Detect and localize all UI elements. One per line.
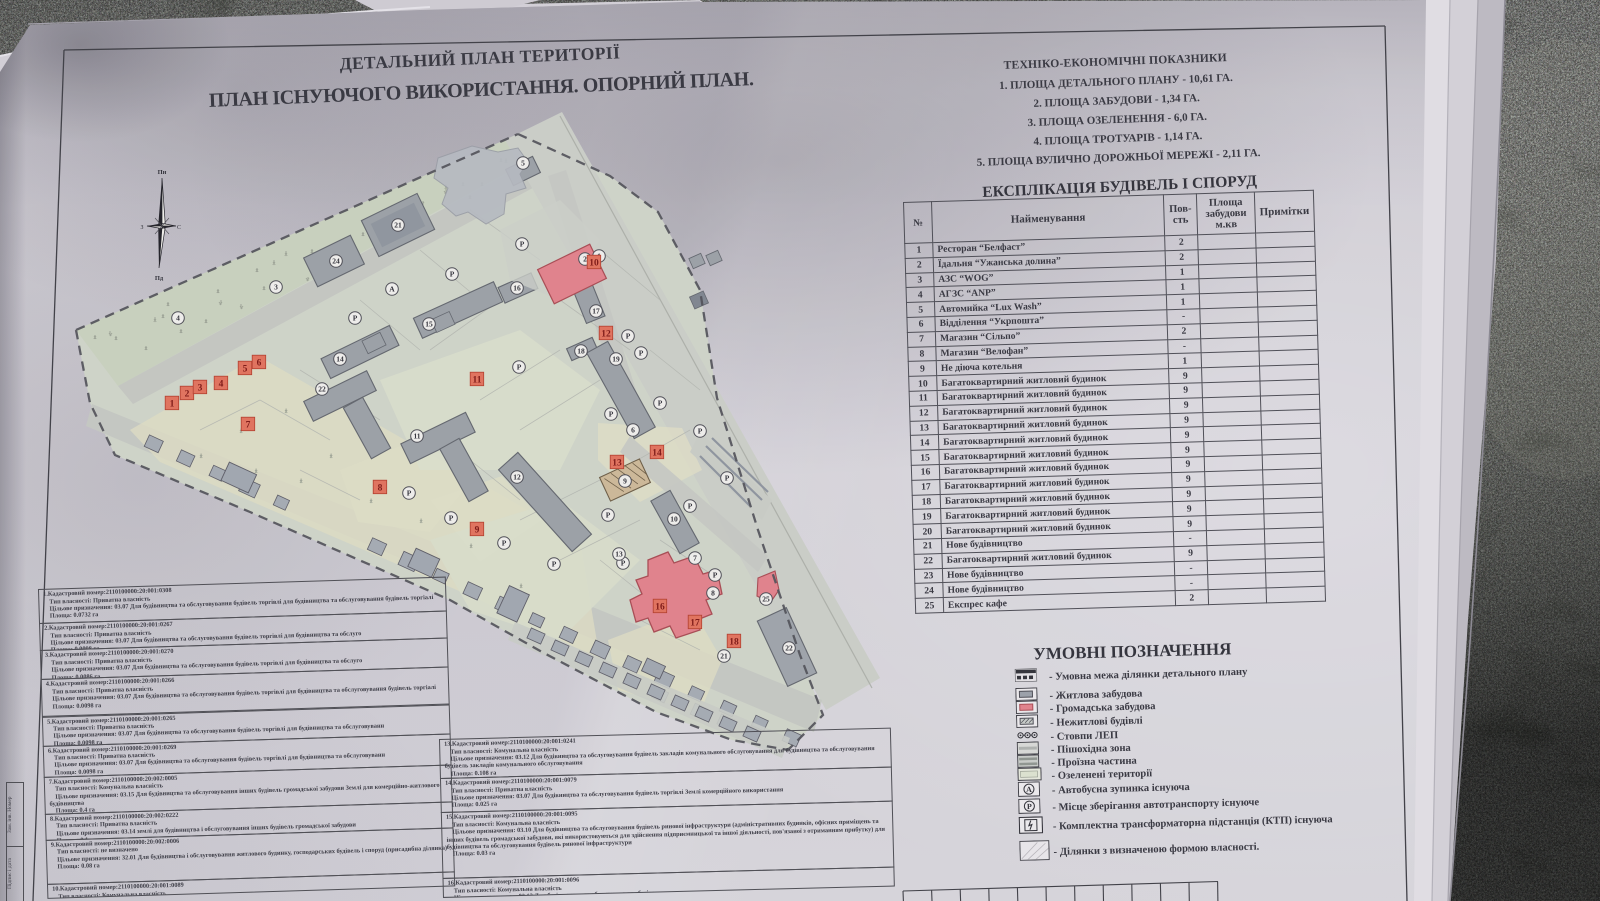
svg-text:P: P xyxy=(520,240,525,249)
svg-text:P: P xyxy=(639,349,644,358)
svg-text:A: A xyxy=(389,285,395,294)
svg-text:P: P xyxy=(552,560,557,569)
svg-text:2: 2 xyxy=(185,389,190,399)
svg-text:15: 15 xyxy=(425,320,433,329)
svg-text:З: З xyxy=(140,225,143,231)
svg-text:14: 14 xyxy=(336,355,344,364)
svg-text:P: P xyxy=(502,539,507,548)
svg-text:13: 13 xyxy=(612,458,622,468)
svg-text:11: 11 xyxy=(413,432,420,441)
svg-text:8: 8 xyxy=(711,589,715,598)
svg-text:6: 6 xyxy=(631,426,635,435)
svg-text:P: P xyxy=(517,363,522,372)
svg-text:Пд: Пд xyxy=(155,275,164,282)
svg-text:P: P xyxy=(609,410,614,419)
svg-text:P: P xyxy=(606,511,611,520)
svg-text:Р: Р xyxy=(1027,802,1032,811)
svg-text:19: 19 xyxy=(612,355,620,364)
svg-text:4: 4 xyxy=(219,379,224,389)
svg-text:P: P xyxy=(658,399,663,408)
svg-text:21: 21 xyxy=(394,221,402,230)
svg-text:2: 2 xyxy=(583,255,587,264)
svg-text:7: 7 xyxy=(246,420,251,430)
svg-text:4: 4 xyxy=(176,314,180,323)
svg-text:17: 17 xyxy=(592,307,600,316)
svg-text:10: 10 xyxy=(589,258,599,268)
svg-text:16: 16 xyxy=(655,602,665,612)
svg-text:3: 3 xyxy=(198,383,203,393)
svg-text:P: P xyxy=(698,427,703,436)
svg-text:P: P xyxy=(725,474,730,483)
svg-text:16: 16 xyxy=(513,284,521,293)
svg-text:21: 21 xyxy=(720,652,728,661)
svg-text:17: 17 xyxy=(690,618,700,628)
svg-text:5: 5 xyxy=(243,364,248,374)
svg-text:А: А xyxy=(1026,785,1032,794)
svg-text:6: 6 xyxy=(257,358,262,368)
svg-text:7: 7 xyxy=(693,554,697,563)
svg-text:P: P xyxy=(353,314,358,323)
svg-text:13: 13 xyxy=(615,550,623,559)
svg-text:P: P xyxy=(450,270,455,279)
svg-text:10: 10 xyxy=(670,515,678,524)
svg-text:С: С xyxy=(177,225,181,231)
svg-text:3: 3 xyxy=(274,283,278,292)
svg-text:P: P xyxy=(449,514,454,523)
svg-text:18: 18 xyxy=(729,637,739,647)
svg-text:Пн: Пн xyxy=(158,169,167,176)
svg-text:18: 18 xyxy=(577,347,585,356)
svg-text:11: 11 xyxy=(473,375,482,385)
svg-text:22: 22 xyxy=(318,385,326,394)
svg-text:P: P xyxy=(688,502,693,511)
svg-text:24: 24 xyxy=(332,257,340,266)
svg-text:1: 1 xyxy=(170,399,175,409)
svg-text:P: P xyxy=(626,332,631,341)
svg-text:9: 9 xyxy=(475,525,480,535)
svg-text:P: P xyxy=(407,489,412,498)
svg-text:8: 8 xyxy=(378,483,383,493)
svg-text:9: 9 xyxy=(623,477,627,486)
svg-text:12: 12 xyxy=(601,329,611,339)
svg-text:5: 5 xyxy=(521,159,525,168)
svg-text:25: 25 xyxy=(762,595,770,604)
svg-text:P: P xyxy=(713,571,718,580)
svg-text:22: 22 xyxy=(785,644,793,653)
svg-text:12: 12 xyxy=(513,473,521,482)
svg-text:14: 14 xyxy=(652,448,662,458)
